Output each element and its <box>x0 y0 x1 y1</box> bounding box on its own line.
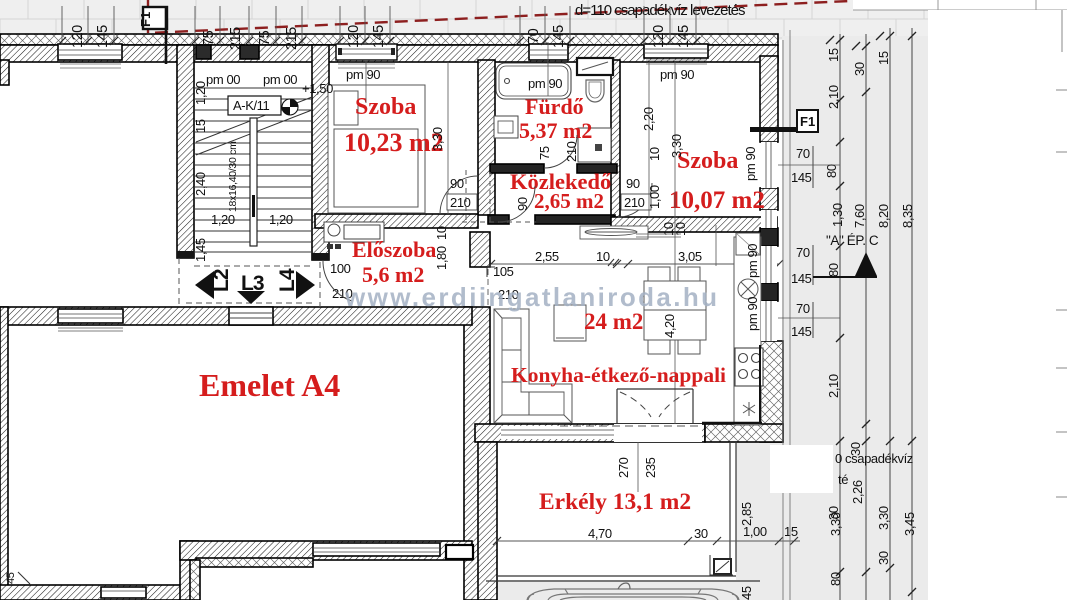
svg-text:d=110 csapadékvíz levezetés: d=110 csapadékvíz levezetés <box>575 2 745 19</box>
svg-text:2,85: 2,85 <box>739 502 754 526</box>
svg-text:pm 90: pm 90 <box>743 147 758 181</box>
svg-text:Erkély 13,1 m2: Erkély 13,1 m2 <box>539 489 691 515</box>
svg-text:145: 145 <box>791 170 812 185</box>
svg-text:A-K/11: A-K/11 <box>233 98 270 113</box>
svg-text:80: 80 <box>828 572 843 586</box>
svg-text:100: 100 <box>330 261 351 276</box>
svg-text:75: 75 <box>201 30 217 46</box>
svg-text:120: 120 <box>70 25 86 48</box>
svg-text:235: 235 <box>643 457 658 478</box>
svg-text:120: 120 <box>346 25 362 48</box>
svg-text:3,30: 3,30 <box>876 506 891 530</box>
svg-text:8,20: 8,20 <box>876 204 891 228</box>
svg-text:2,10: 2,10 <box>826 85 841 109</box>
svg-text:8,35: 8,35 <box>900 204 915 228</box>
svg-text:Emelet A4: Emelet A4 <box>199 367 340 403</box>
svg-text:2,10: 2,10 <box>826 374 841 398</box>
svg-text:Előszoba: Előszoba <box>352 237 436 262</box>
svg-text:90: 90 <box>515 197 530 211</box>
svg-text:1,30: 1,30 <box>830 203 845 227</box>
svg-text:1,80: 1,80 <box>434 246 449 270</box>
svg-text:15: 15 <box>784 524 798 539</box>
svg-text:1,20: 1,20 <box>193 81 208 105</box>
svg-text:Szoba: Szoba <box>677 148 738 174</box>
svg-text:80: 80 <box>824 164 839 178</box>
svg-text:5,37 m2: 5,37 m2 <box>519 118 592 143</box>
svg-text:120: 120 <box>651 25 667 48</box>
svg-text:1,20: 1,20 <box>269 212 293 227</box>
svg-text:145: 145 <box>676 25 692 48</box>
svg-text:45: 45 <box>739 586 754 600</box>
svg-text:15: 15 <box>193 119 208 133</box>
svg-text:Szoba: Szoba <box>355 94 416 120</box>
svg-text:F1: F1 <box>138 12 153 27</box>
svg-text:30: 30 <box>694 526 708 541</box>
svg-text:70: 70 <box>796 301 810 316</box>
svg-text:pm 90: pm 90 <box>660 67 694 82</box>
svg-text:10,07 m2: 10,07 m2 <box>669 187 765 214</box>
svg-text:2,26: 2,26 <box>850 480 865 504</box>
svg-text:105: 105 <box>493 264 514 279</box>
svg-text:210: 210 <box>450 195 471 210</box>
svg-text:"A" ÉP. C: "A" ÉP. C <box>826 233 879 248</box>
svg-text:pm 90: pm 90 <box>346 67 380 82</box>
svg-text:10: 10 <box>434 226 449 240</box>
svg-text:pm 90: pm 90 <box>528 76 562 91</box>
svg-text:pm 90: pm 90 <box>745 297 760 331</box>
svg-text:L2: L2 <box>210 269 233 292</box>
svg-text:215: 215 <box>228 27 244 50</box>
svg-text:2,40: 2,40 <box>193 172 208 196</box>
svg-text:1,20: 1,20 <box>211 212 235 227</box>
svg-text:15: 15 <box>826 48 841 62</box>
svg-text:70: 70 <box>526 28 542 44</box>
svg-text:210: 210 <box>564 141 579 162</box>
svg-text:pm 00: pm 00 <box>263 72 297 87</box>
svg-text:215: 215 <box>284 27 300 50</box>
svg-text:0 csapadékvíz: 0 csapadékvíz <box>835 451 913 466</box>
svg-text:2,65 m2: 2,65 m2 <box>534 189 604 213</box>
svg-text:45: 45 <box>5 572 17 584</box>
svg-text:270: 270 <box>616 457 631 478</box>
svg-text:90: 90 <box>626 176 640 191</box>
svg-text:24 m2: 24 m2 <box>584 309 643 334</box>
svg-text:90: 90 <box>450 176 464 191</box>
svg-text:10: 10 <box>596 249 610 264</box>
svg-text:3,30: 3,30 <box>430 127 445 151</box>
svg-text:pm 00: pm 00 <box>206 72 240 87</box>
svg-text:80: 80 <box>826 263 841 277</box>
svg-text:Fürdő: Fürdő <box>525 94 584 119</box>
svg-text:4,70: 4,70 <box>588 526 612 541</box>
svg-text:145: 145 <box>791 324 812 339</box>
svg-text:10,23 m2: 10,23 m2 <box>344 128 444 157</box>
svg-text:145: 145 <box>551 25 567 48</box>
svg-text:18x16,40/30 cm: 18x16,40/30 cm <box>227 141 239 212</box>
svg-text:70: 70 <box>796 146 810 161</box>
svg-text:7,60: 7,60 <box>852 204 867 228</box>
svg-text:145: 145 <box>791 271 812 286</box>
svg-text:30: 30 <box>876 551 891 565</box>
svg-text:Konyha-étkező-nappali: Konyha-étkező-nappali <box>511 363 726 387</box>
svg-text:2,20: 2,20 <box>641 107 656 131</box>
svg-text:1,45: 1,45 <box>193 238 208 262</box>
svg-text:30: 30 <box>826 506 841 520</box>
svg-text:www.erdiingatlaniroda.hu: www.erdiingatlaniroda.hu <box>344 282 719 312</box>
svg-text:té: té <box>838 472 848 487</box>
svg-text:30: 30 <box>852 62 867 76</box>
svg-text:15: 15 <box>876 51 891 65</box>
svg-text:70: 70 <box>796 245 810 260</box>
svg-text:F1: F1 <box>800 114 815 129</box>
svg-text:75: 75 <box>537 146 552 160</box>
svg-text:2,55: 2,55 <box>535 249 559 264</box>
svg-text:145: 145 <box>95 25 111 48</box>
svg-text:3,05: 3,05 <box>678 249 702 264</box>
svg-text:L4: L4 <box>276 268 299 292</box>
svg-text:145: 145 <box>371 25 387 48</box>
svg-text:3,30: 3,30 <box>669 134 684 158</box>
svg-text:+1,50: +1,50 <box>302 81 333 96</box>
svg-text:4,20: 4,20 <box>662 314 677 338</box>
svg-text:75: 75 <box>257 30 273 46</box>
svg-text:3,45: 3,45 <box>902 512 917 536</box>
svg-text:pm 90: pm 90 <box>745 244 760 278</box>
svg-text:210: 210 <box>624 195 645 210</box>
